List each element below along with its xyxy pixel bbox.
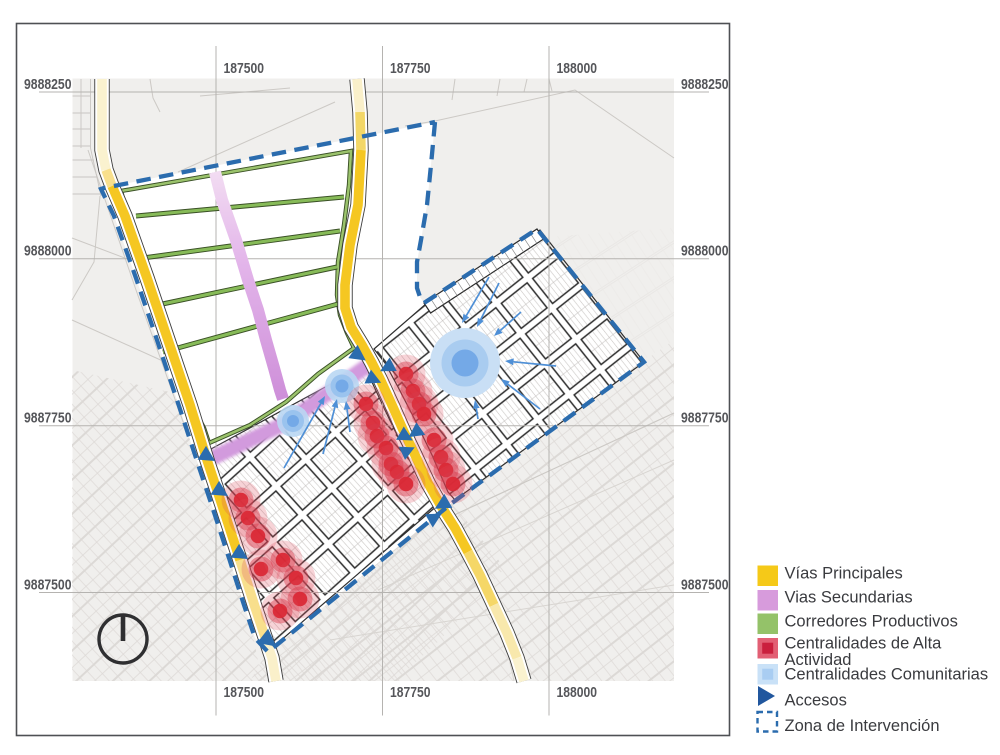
svg-text:Centralidades de Alta: Centralidades de Alta (785, 635, 943, 653)
svg-text:Centralidades Comunitarias: Centralidades Comunitarias (785, 666, 989, 684)
svg-text:9887750: 9887750 (24, 410, 72, 427)
svg-text:Zona de Intervención: Zona de Intervención (785, 717, 940, 735)
svg-text:Vías Principales: Vías Principales (785, 565, 903, 583)
svg-text:9888250: 9888250 (24, 76, 72, 93)
svg-text:Accesos: Accesos (785, 692, 847, 710)
svg-text:9888000: 9888000 (24, 243, 72, 260)
svg-text:Vias Secundarias: Vias Secundarias (785, 589, 913, 607)
svg-text:187500: 187500 (224, 684, 265, 701)
svg-text:187750: 187750 (390, 684, 431, 701)
svg-text:188000: 188000 (557, 684, 598, 701)
svg-text:9888000: 9888000 (681, 243, 729, 260)
svg-text:9888250: 9888250 (681, 76, 729, 93)
svg-text:9887750: 9887750 (681, 410, 729, 427)
svg-text:187500: 187500 (224, 60, 265, 77)
svg-text:Corredores Productivos: Corredores Productivos (785, 613, 958, 631)
svg-text:187750: 187750 (390, 60, 431, 77)
svg-text:9887500: 9887500 (681, 576, 729, 593)
svg-text:188000: 188000 (557, 60, 598, 77)
svg-text:9887500: 9887500 (24, 576, 72, 593)
